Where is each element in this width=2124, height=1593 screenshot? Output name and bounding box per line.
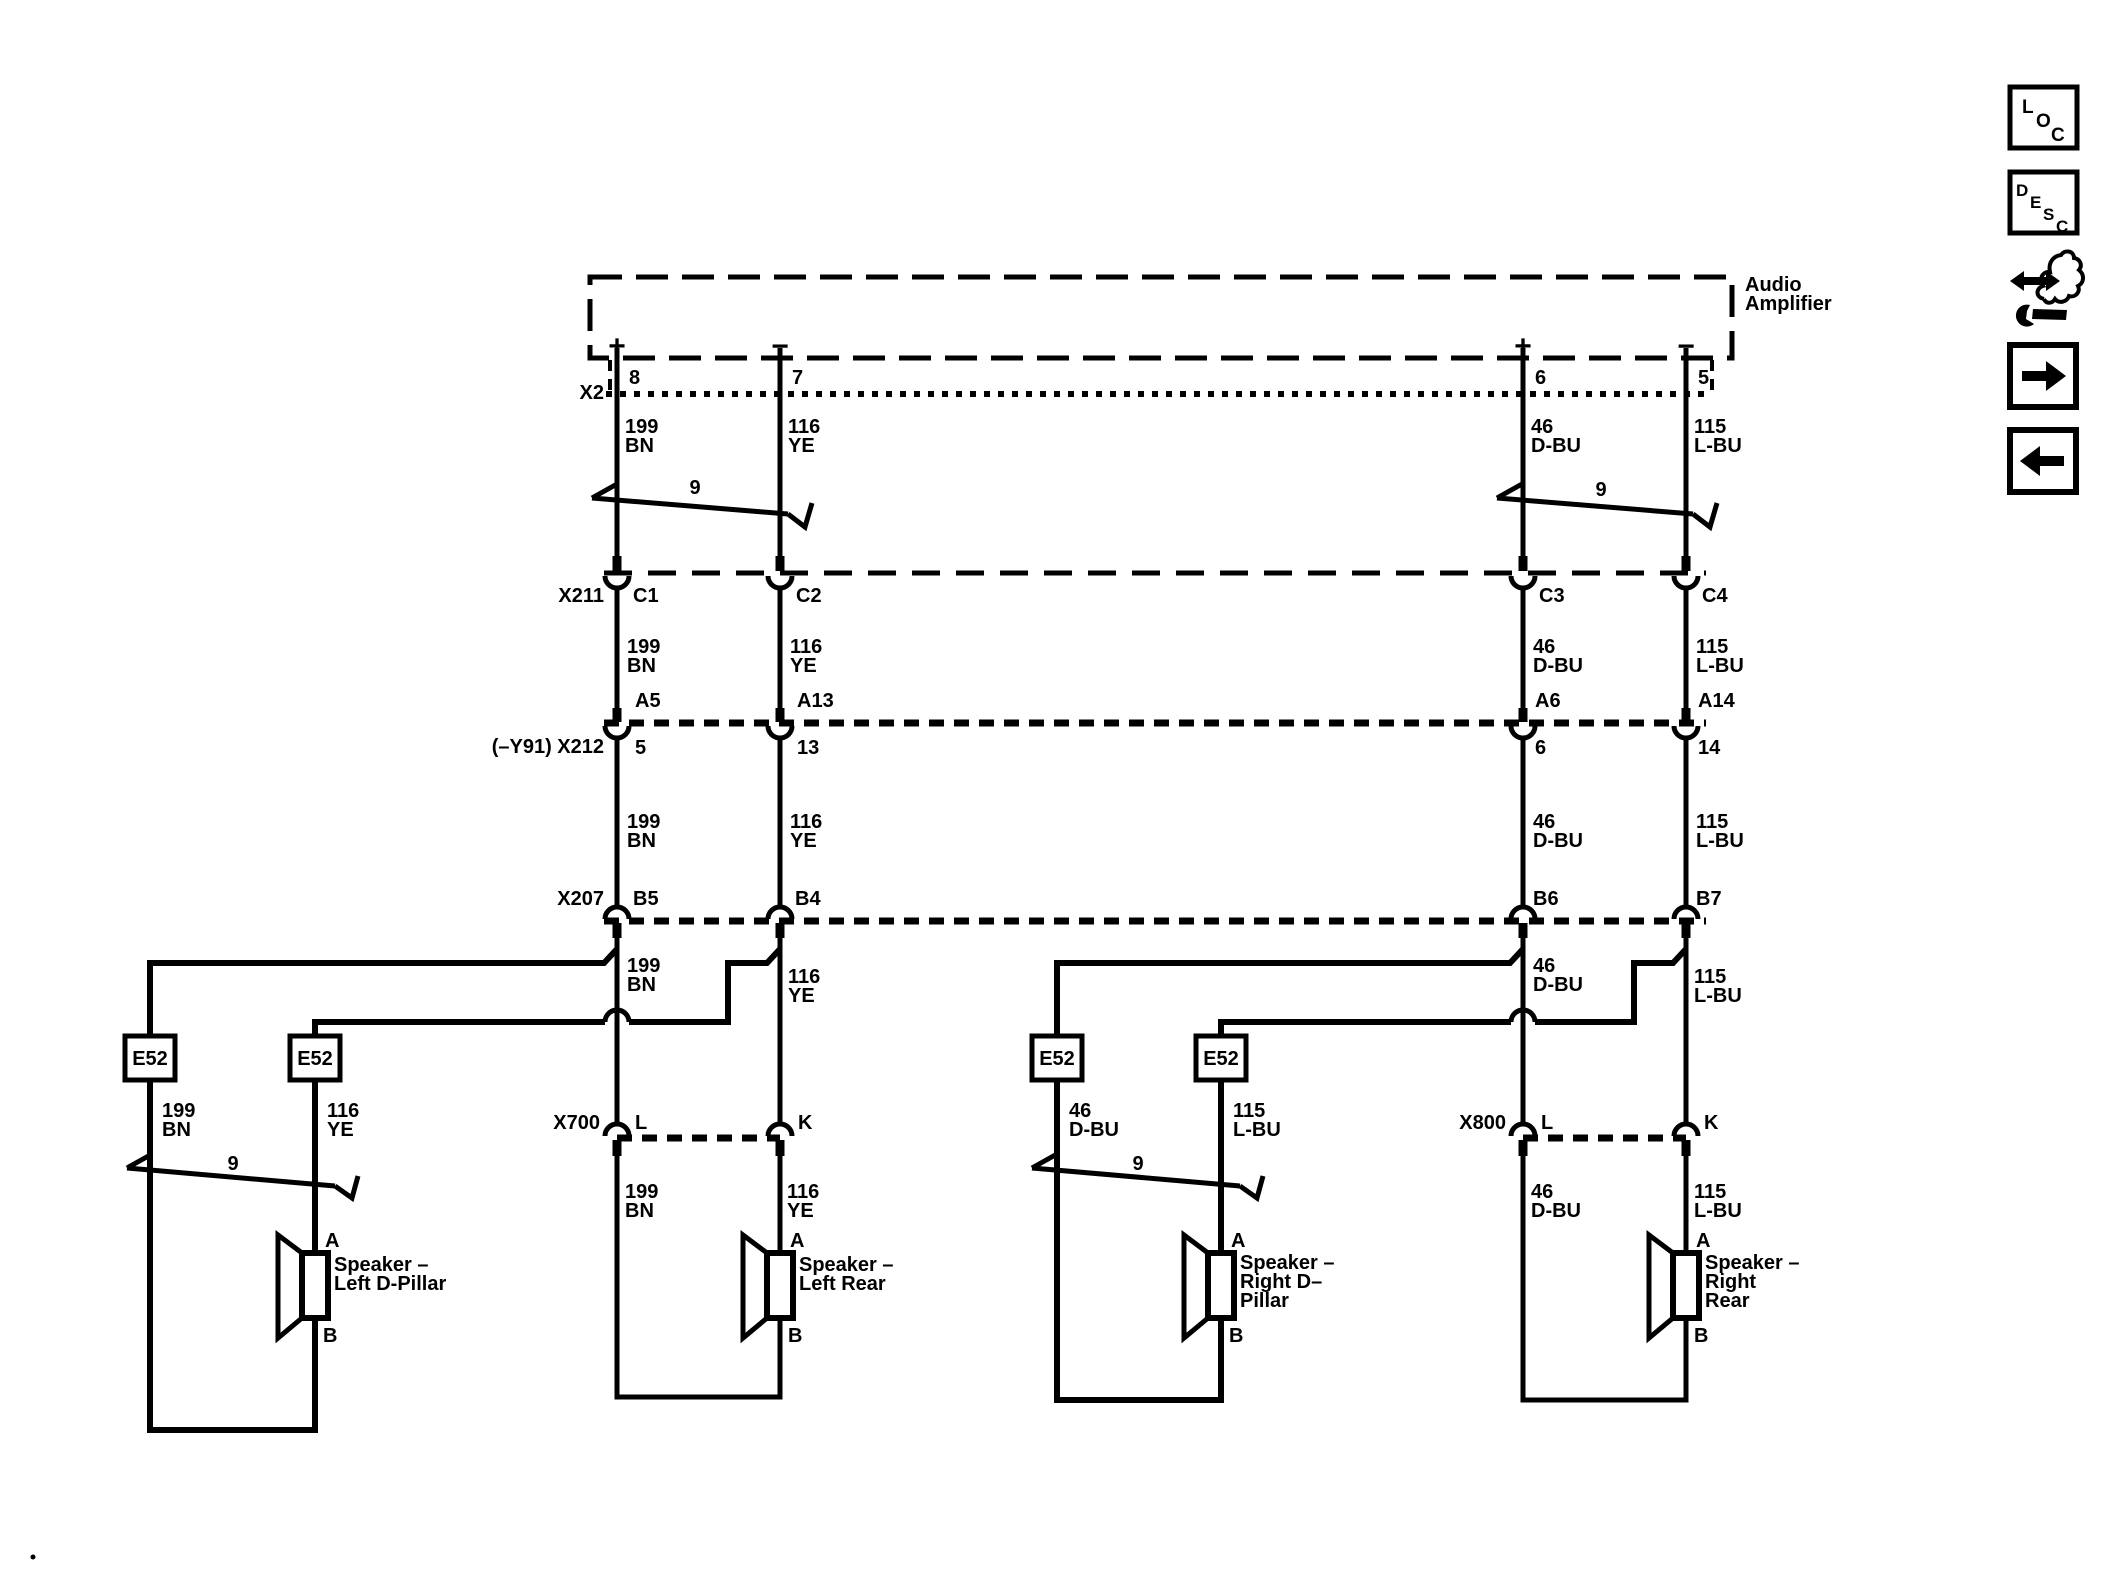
wrench-icon [2016, 305, 2067, 327]
nav-back-button[interactable] [2010, 430, 2076, 492]
socket-arc [768, 726, 792, 738]
lbl-lbu: L-BU [1694, 1200, 1742, 1222]
x212-pin-6: 6 [1535, 737, 1546, 759]
nav-forward-button[interactable] [2010, 345, 2076, 407]
lbl-ye: YE [327, 1119, 354, 1141]
x207-name: X207 [557, 888, 604, 910]
x212-amp-pin-a5: A5 [635, 690, 661, 712]
lbl-bn: BN [627, 655, 656, 677]
speaker-cone [278, 1235, 302, 1338]
x211-pin-c4: C4 [1702, 585, 1728, 607]
sidebar-desc-button[interactable]: D E S C [2010, 172, 2077, 236]
terminal-b-label: B [1229, 1325, 1243, 1347]
speaker-cone [1184, 1235, 1208, 1338]
socket-arc [768, 907, 792, 919]
lbl-bn: BN [625, 435, 654, 457]
connector-x800: X800 L K 46 D-BU 115 L-BU [1459, 1112, 1741, 1222]
sidebar-wrench-tool-button[interactable] [2010, 251, 2083, 326]
splice-e52-2: E52 116 YE [290, 1036, 359, 1141]
terminal-a-label: A [1696, 1230, 1710, 1252]
x700-pin-k: K [798, 1112, 813, 1134]
lbl-lbu: L-BU [1696, 655, 1744, 677]
terminal-b-label: B [1694, 1325, 1708, 1347]
x2-pin-5: 5 [1698, 367, 1709, 389]
audio-amplifier-box: Audio Amplifier + − + − [590, 274, 1832, 363]
speaker-left-rear: A Speaker – Left Rear B [743, 1230, 894, 1347]
x700-pin-l: L [635, 1112, 647, 1134]
connector-x207: X207 B5 B4 B6 B7 [557, 888, 1721, 938]
speaker-name-line2: Left D-Pillar [334, 1273, 446, 1295]
branch-115-lbu [1221, 949, 1686, 1253]
double-arrow-icon [2010, 271, 2060, 291]
speaker-driver [767, 1253, 793, 1318]
loc-letter: L [2022, 97, 2034, 118]
socket-arc [605, 576, 629, 588]
wire-labels-row3: 199 BN 116 YE 46 D-BU 115 L-BU [627, 811, 1744, 852]
lbl-bn: BN [162, 1119, 191, 1141]
lbl-bn: BN [625, 1200, 654, 1222]
splice-e52-4: E52 115 L-BU [1196, 1036, 1281, 1141]
lbl-ye: YE [788, 435, 815, 457]
twisted-pair-lower-right: 9 [1032, 1153, 1263, 1198]
loc-letter: C [2051, 125, 2065, 146]
desc-letter: S [2043, 205, 2054, 224]
terminal-b-label: B [323, 1325, 337, 1347]
x700-name: X700 [553, 1112, 600, 1134]
lbl-bn: BN [627, 974, 656, 996]
x207-pin-b7: B7 [1696, 888, 1722, 910]
x207-pin-b6: B6 [1533, 888, 1559, 910]
speaker-right-d-pillar: A Speaker – Right D– Pillar B [1184, 1230, 1335, 1347]
socket-arc [605, 907, 629, 919]
socket-arc [1674, 907, 1698, 919]
speaker-name-line2: Left Rear [799, 1273, 886, 1295]
speaker-driver [302, 1253, 328, 1318]
speaker-cone [743, 1235, 767, 1338]
x2-pin-7: 7 [792, 367, 803, 389]
x2-pin-6: 6 [1535, 367, 1546, 389]
stray-dot [31, 1555, 36, 1560]
lbl-ye: YE [787, 1200, 814, 1222]
x211-pin-c2: C2 [796, 585, 822, 607]
socket-arc [1674, 576, 1698, 588]
terminal-b-label: B [788, 1325, 802, 1347]
x211-pin-c1: C1 [633, 585, 659, 607]
twisted-pair-label: 9 [227, 1153, 238, 1175]
socket-arc [605, 1124, 629, 1136]
x212-amp-pin-a14: A14 [1698, 690, 1736, 712]
x212-pin-5: 5 [635, 737, 646, 759]
splice-e52-1: E52 199 BN [125, 1036, 195, 1141]
terminal-a-label: A [790, 1230, 804, 1252]
lbl-dbu: D-BU [1531, 1200, 1581, 1222]
branch-116-ye [315, 949, 780, 1253]
wiring-diagram-canvas: Audio Amplifier + − + − X2 8 7 6 5 199 B… [0, 0, 2124, 1593]
twisted-pair-label: 9 [1595, 479, 1606, 501]
speaker-name-line3: Rear [1705, 1290, 1750, 1312]
speaker-driver [1673, 1253, 1699, 1318]
terminal-a-label: A [1231, 1230, 1245, 1252]
desc-letter: E [2030, 193, 2041, 212]
x211-pin-c3: C3 [1539, 585, 1565, 607]
connector-x211: X211 C1 C2 C3 C4 [558, 556, 1728, 607]
twisted-pair-slash [1032, 1154, 1263, 1198]
lbl-dbu: D-BU [1531, 435, 1581, 457]
socket-arc [1674, 726, 1698, 738]
x207-pin-b4: B4 [795, 888, 821, 910]
x211-name: X211 [558, 585, 604, 607]
wire-labels-row2: 199 BN 116 YE 46 D-BU 115 L-BU [627, 636, 1744, 677]
socket-arc [1674, 1124, 1698, 1136]
lbl-ye: YE [788, 985, 815, 1007]
lbl-dbu: D-BU [1533, 655, 1583, 677]
desc-letter: D [2016, 181, 2028, 200]
speaker-name-line3: Pillar [1240, 1290, 1289, 1312]
x800-pin-l: L [1541, 1112, 1553, 1134]
e52-label: E52 [1039, 1048, 1075, 1070]
x212-amp-pin-a6: A6 [1535, 690, 1561, 712]
desc-letter: C [2056, 217, 2068, 236]
wiring-diagram-page: Audio Amplifier + − + − X2 8 7 6 5 199 B… [0, 0, 2124, 1593]
terminal-a-label: A [325, 1230, 339, 1252]
x2-name: X2 [580, 382, 604, 404]
e52-label: E52 [1203, 1048, 1239, 1070]
socket-arc [768, 576, 792, 588]
x212-name: (–Y91) X212 [492, 736, 604, 758]
x212-amp-pin-a13: A13 [797, 690, 834, 712]
splice-e52-3: E52 46 D-BU [1032, 1036, 1119, 1141]
lbl-lbu: L-BU [1233, 1119, 1281, 1141]
arrow-left-icon [2020, 446, 2064, 476]
socket-arc [1511, 576, 1535, 588]
e52-label: E52 [297, 1048, 333, 1070]
x2-pin-8: 8 [629, 367, 640, 389]
loc-letter: O [2036, 111, 2051, 132]
speaker-left-d-pillar: A Speaker – Left D-Pillar B [278, 1230, 446, 1347]
arrow-right-icon [2022, 361, 2066, 391]
socket-arc [1511, 1124, 1535, 1136]
socket-arc [605, 726, 629, 738]
lbl-ye: YE [790, 830, 817, 852]
lbl-dbu: D-BU [1533, 974, 1583, 996]
x800-pin-k: K [1704, 1112, 1719, 1134]
wire-labels-row1: 199 BN 116 YE 46 D-BU 115 L-BU [625, 416, 1742, 457]
e52-label: E52 [132, 1048, 168, 1070]
connector-x212: A5 A13 A6 A14 (–Y91) X212 5 13 6 14 [492, 690, 1736, 759]
lbl-dbu: D-BU [1069, 1119, 1119, 1141]
x212-pin-14: 14 [1698, 737, 1721, 759]
lbl-dbu: D-BU [1533, 830, 1583, 852]
x207-pin-b5: B5 [633, 888, 659, 910]
amplifier-outline [590, 277, 1732, 358]
sidebar-loc-button[interactable]: L O C [2010, 87, 2077, 148]
socket-arc [768, 1124, 792, 1136]
twisted-pair-label: 9 [689, 477, 700, 499]
x800-name: X800 [1459, 1112, 1506, 1134]
socket-arc [1511, 907, 1535, 919]
socket-arc [1511, 726, 1535, 738]
lbl-lbu: L-BU [1696, 830, 1744, 852]
lbl-lbu: L-BU [1694, 435, 1742, 457]
speaker-driver [1208, 1253, 1234, 1318]
speaker-right-rear: A Speaker – Right Rear B [1649, 1230, 1800, 1347]
lbl-bn: BN [627, 830, 656, 852]
connector-x2: X2 8 7 6 5 [580, 360, 1712, 404]
twisted-pair-lower-left: 9 [127, 1153, 358, 1198]
twisted-pair-label: 9 [1132, 1153, 1143, 1175]
lbl-ye: YE [790, 655, 817, 677]
twisted-pair-slash [127, 1154, 358, 1198]
x212-pin-13: 13 [797, 737, 819, 759]
speaker-cone [1649, 1235, 1673, 1338]
lbl-lbu: L-BU [1694, 985, 1742, 1007]
amplifier-label-line2: Amplifier [1745, 293, 1832, 315]
